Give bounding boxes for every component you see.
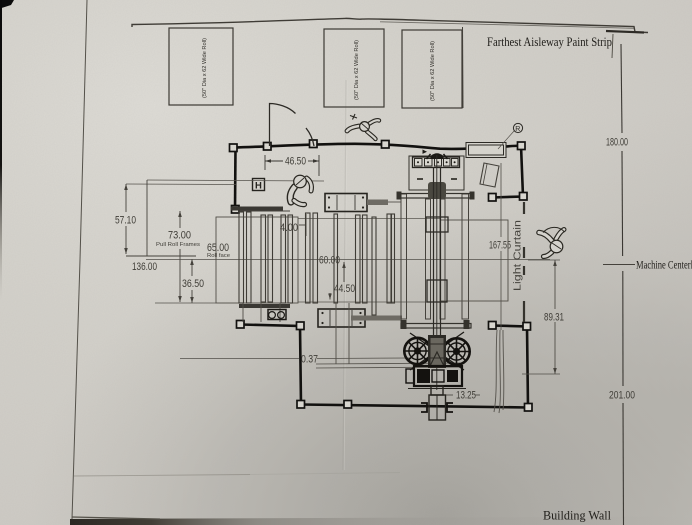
svg-text:(50" Dia x 62 Wide Roll): (50" Dia x 62 Wide Roll) — [354, 40, 360, 100]
svg-text:60.00: 60.00 — [319, 255, 340, 267]
svg-text:Machine Centerl: Machine Centerl — [636, 259, 692, 272]
svg-text:R: R — [515, 126, 520, 133]
svg-text:Farthest Aisleway Paint Strip: Farthest Aisleway Paint Strip — [487, 34, 612, 49]
svg-text:36.50: 36.50 — [182, 278, 204, 290]
svg-text:0.37: 0.37 — [301, 354, 318, 366]
svg-text:73.00: 73.00 — [168, 230, 191, 242]
svg-text:4.00: 4.00 — [280, 222, 298, 234]
svg-text:89.31: 89.31 — [544, 312, 564, 324]
svg-text:Roll face: Roll face — [207, 253, 230, 259]
svg-text:Light Curtain: Light Curtain — [513, 220, 524, 291]
svg-text:46.50: 46.50 — [285, 156, 306, 168]
svg-text:201.00: 201.00 — [609, 390, 635, 402]
svg-text:(50" Dia x 62 Wide Roll): (50" Dia x 62 Wide Roll) — [202, 38, 208, 98]
svg-text:H: H — [255, 181, 262, 192]
svg-text:(50" Dia x 62 Wide Roll): (50" Dia x 62 Wide Roll) — [430, 41, 436, 101]
svg-text:Building Wall: Building Wall — [543, 509, 612, 523]
svg-text:Pull Roll Frames: Pull Roll Frames — [156, 242, 200, 248]
svg-text:180.00: 180.00 — [606, 137, 628, 149]
svg-text:57.10: 57.10 — [115, 215, 136, 227]
svg-text:13.25: 13.25 — [456, 390, 476, 402]
svg-text:136.00: 136.00 — [132, 261, 157, 273]
